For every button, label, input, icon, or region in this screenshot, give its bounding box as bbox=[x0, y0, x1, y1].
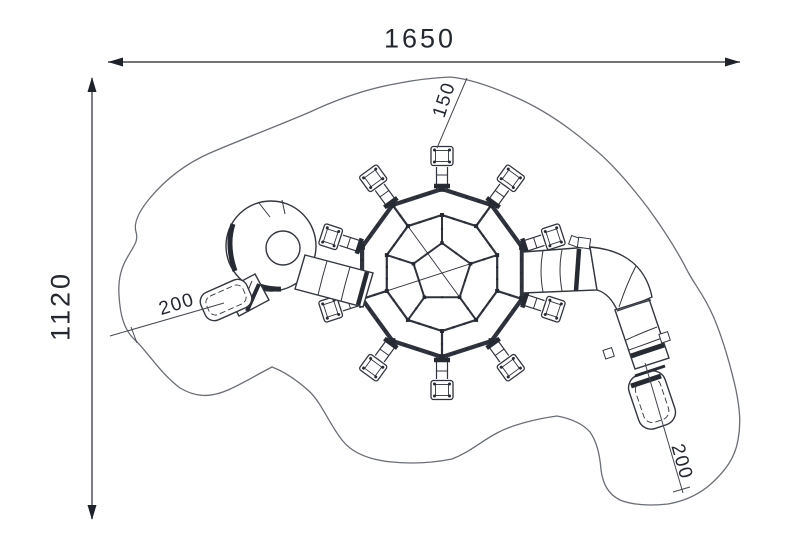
plan-drawing-canvas: 1650 1120 150 200 200 bbox=[0, 0, 800, 551]
arm-foot-pad bbox=[496, 164, 525, 192]
arrowhead-up-icon bbox=[88, 77, 97, 92]
arm-foot-pad bbox=[541, 223, 566, 250]
arm-foot-pad bbox=[431, 381, 453, 400]
arm-foot-pad bbox=[318, 223, 343, 250]
dimension-label-width: 1650 bbox=[384, 24, 456, 55]
arm-foot-pad bbox=[359, 164, 388, 192]
arm-foot-pad bbox=[431, 147, 453, 166]
arrowhead-left-icon bbox=[108, 58, 123, 67]
arrowhead-down-icon bbox=[88, 505, 97, 520]
dimension-line-depth bbox=[88, 77, 97, 520]
dome-arm bbox=[431, 355, 453, 400]
dome-arm bbox=[318, 223, 365, 253]
dome-climber bbox=[359, 186, 524, 360]
spiral-slide-left bbox=[197, 200, 373, 324]
arrowhead-right-icon bbox=[725, 58, 740, 67]
arm-foot-pad bbox=[496, 354, 525, 382]
dome-arm bbox=[518, 292, 565, 322]
spiral-loop-inner bbox=[266, 231, 300, 265]
tube-slide-right bbox=[523, 237, 679, 432]
dimension-line-width bbox=[108, 58, 740, 67]
dome-arm bbox=[431, 147, 453, 192]
arm-foot-pad bbox=[359, 354, 388, 382]
arm-foot-pad bbox=[541, 296, 566, 323]
dimension-label-depth: 1120 bbox=[46, 271, 77, 341]
slide-exit-pad bbox=[197, 276, 255, 324]
